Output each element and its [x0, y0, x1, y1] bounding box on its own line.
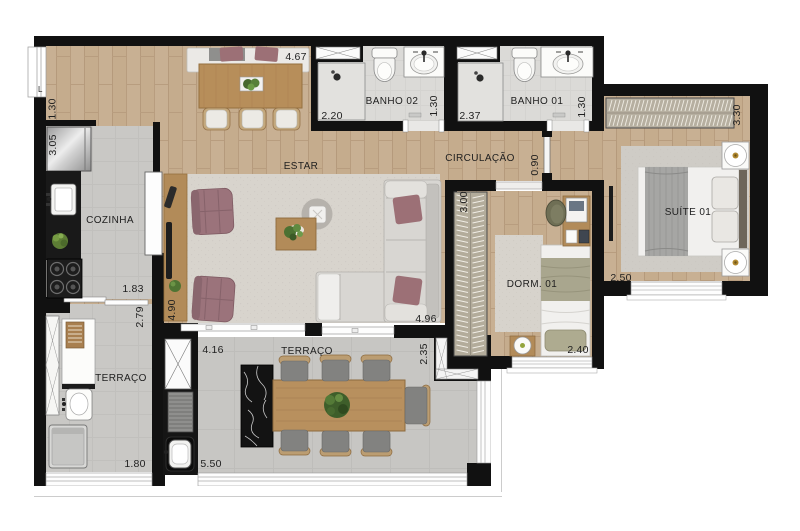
svg-text:4.67: 4.67: [285, 51, 306, 63]
svg-text:4.96: 4.96: [415, 313, 436, 325]
svg-text:4.16: 4.16: [202, 344, 223, 356]
svg-text:L: L: [38, 85, 43, 94]
svg-text:3.30: 3.30: [731, 104, 743, 125]
svg-text:2.37: 2.37: [459, 110, 480, 122]
svg-text:ESTAR: ESTAR: [284, 161, 319, 172]
svg-text:0.90: 0.90: [529, 154, 541, 175]
svg-text:CIRCULAÇÃO: CIRCULAÇÃO: [445, 151, 515, 164]
svg-text:DORM. 01: DORM. 01: [507, 279, 557, 290]
svg-text:BANHO 01: BANHO 01: [511, 96, 564, 107]
svg-text:4.90: 4.90: [166, 299, 178, 320]
svg-text:3.05: 3.05: [47, 134, 59, 155]
svg-text:TERRAÇO: TERRAÇO: [281, 346, 333, 357]
svg-text:1.30: 1.30: [576, 96, 588, 117]
svg-text:TERRAÇO: TERRAÇO: [95, 373, 147, 384]
svg-text:2.50: 2.50: [610, 272, 631, 284]
svg-text:1.80: 1.80: [124, 458, 145, 470]
svg-text:3.00: 3.00: [458, 191, 470, 212]
svg-text:2.20: 2.20: [321, 110, 342, 122]
svg-text:BANHO 02: BANHO 02: [366, 96, 419, 107]
svg-text:5.50: 5.50: [200, 458, 221, 470]
svg-text:2.35: 2.35: [418, 343, 430, 364]
svg-text:1.30: 1.30: [428, 95, 440, 116]
svg-text:2.79: 2.79: [134, 306, 146, 327]
svg-text:1.30: 1.30: [47, 98, 59, 119]
svg-text:2.40: 2.40: [567, 344, 588, 356]
svg-text:1.83: 1.83: [122, 283, 143, 295]
svg-text:SUÍTE 01: SUÍTE 01: [665, 205, 712, 218]
svg-text:COZINHA: COZINHA: [86, 215, 134, 226]
